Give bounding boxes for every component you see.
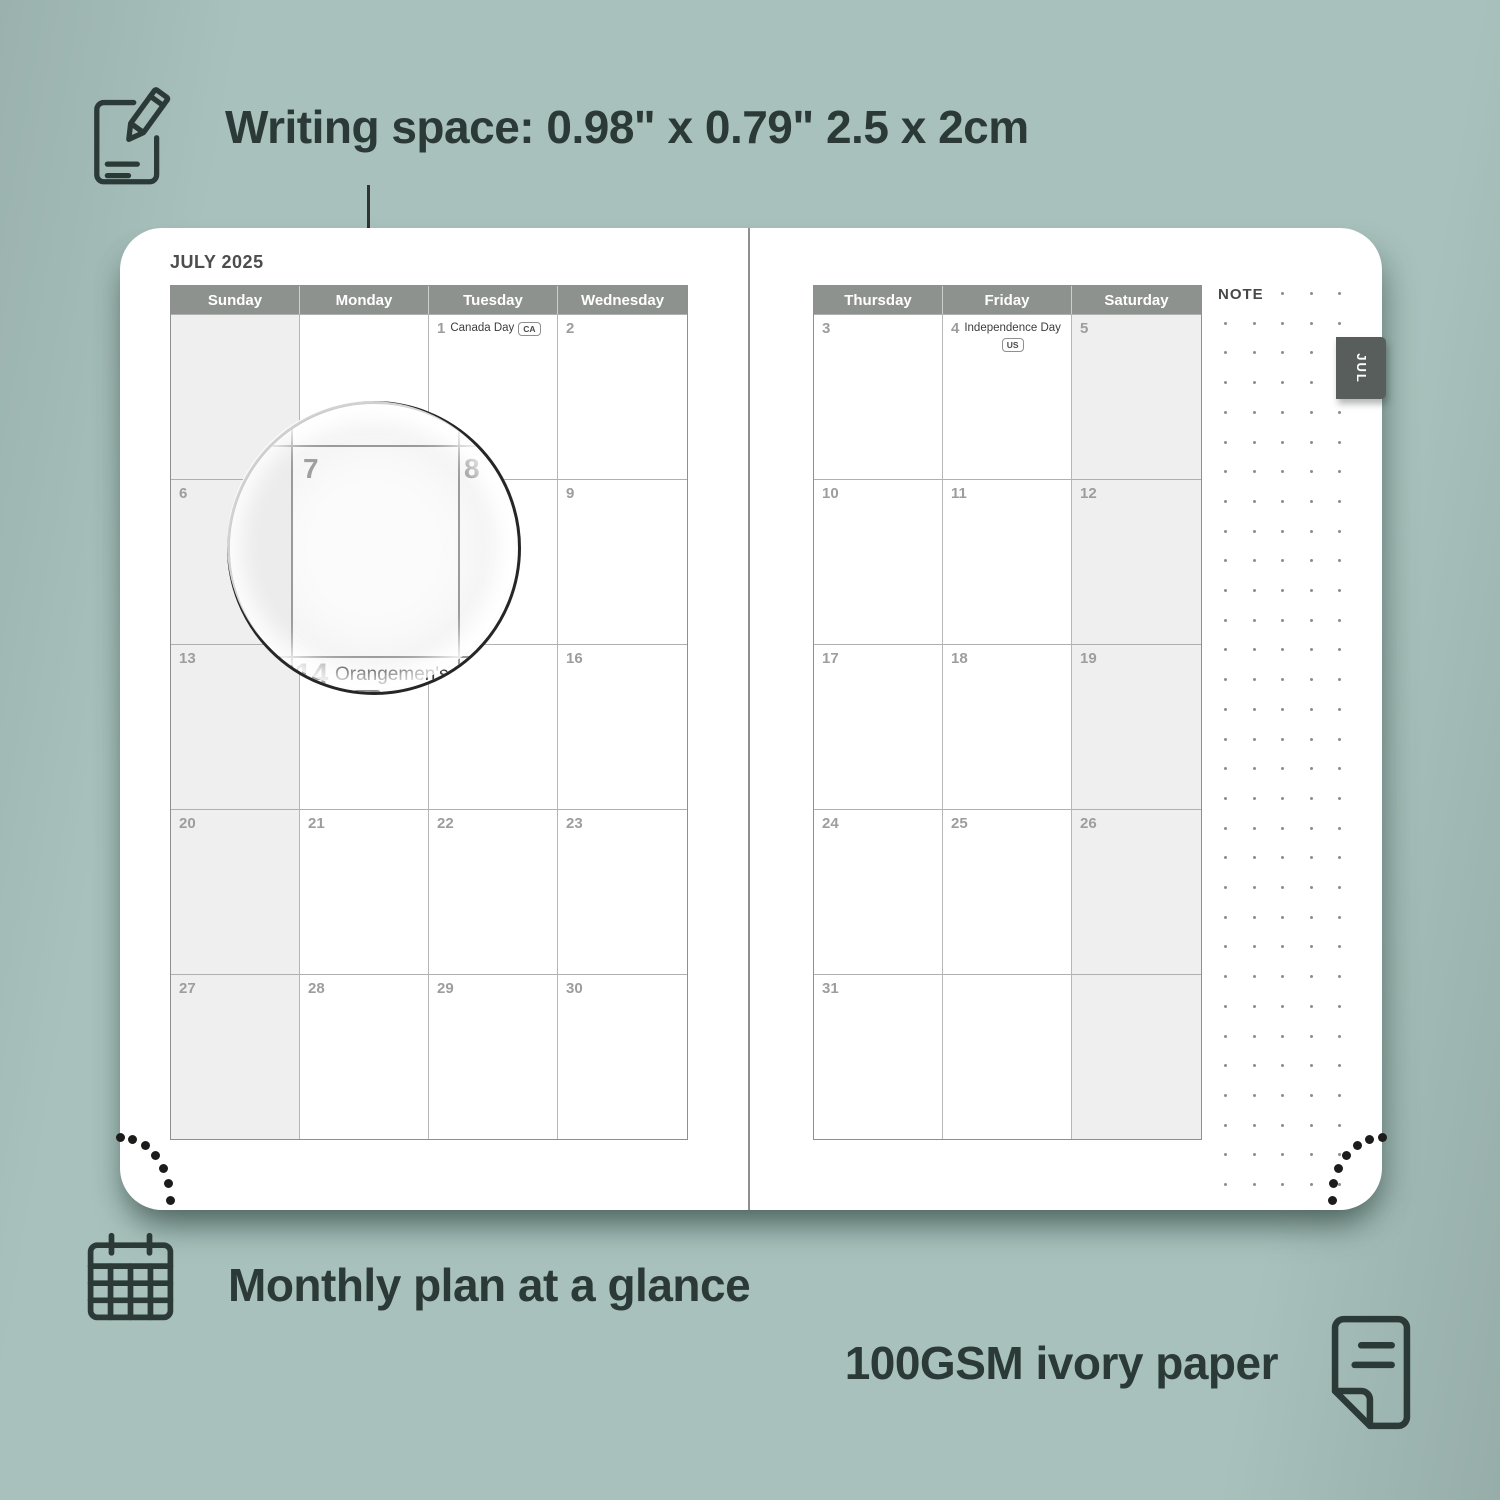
note-dot bbox=[1224, 1124, 1227, 1127]
day-header: Saturday bbox=[1072, 286, 1201, 314]
date-number: 23 bbox=[566, 816, 583, 833]
monthly-plan-label: Monthly plan at a glance bbox=[228, 1258, 750, 1312]
note-dot bbox=[1338, 1094, 1341, 1097]
note-dot bbox=[1253, 530, 1256, 533]
day-header: Tuesday bbox=[429, 286, 558, 314]
calendar-cell: 20 bbox=[171, 809, 300, 974]
note-dot bbox=[1281, 1064, 1284, 1067]
calendar-cell: 2 bbox=[558, 314, 687, 479]
note-dot bbox=[1224, 411, 1227, 414]
note-dot bbox=[1310, 708, 1313, 711]
note-dot bbox=[1224, 886, 1227, 889]
note-dot bbox=[1310, 975, 1313, 978]
note-dot bbox=[1338, 827, 1341, 830]
magnified-day-number: 14 bbox=[295, 660, 328, 690]
note-dot bbox=[1338, 1124, 1341, 1127]
holiday: Independence DayUS bbox=[964, 322, 1061, 352]
date-number: 3 bbox=[822, 321, 830, 338]
note-dot bbox=[1253, 708, 1256, 711]
note-dot bbox=[1281, 619, 1284, 622]
note-dot bbox=[1224, 767, 1227, 770]
note-dot bbox=[1338, 322, 1341, 325]
note-dot bbox=[1338, 500, 1341, 503]
note-dot bbox=[1310, 500, 1313, 503]
note-dot bbox=[1224, 678, 1227, 681]
note-dot bbox=[1310, 411, 1313, 414]
corner-dot bbox=[1365, 1135, 1374, 1144]
date-number: 18 bbox=[951, 651, 968, 668]
note-dot bbox=[1224, 708, 1227, 711]
magnified-grid-line bbox=[291, 404, 293, 692]
note-dot bbox=[1310, 351, 1313, 354]
note-dot bbox=[1224, 797, 1227, 800]
note-dot bbox=[1224, 648, 1227, 651]
note-dot bbox=[1310, 589, 1313, 592]
note-dot bbox=[1281, 856, 1284, 859]
note-dot bbox=[1281, 589, 1284, 592]
writing-space-label: Writing space: 0.98" x 0.79" 2.5 x 2cm bbox=[225, 100, 1029, 154]
magnified-day-number: 7 bbox=[303, 455, 319, 483]
note-dot bbox=[1281, 1005, 1284, 1008]
magnified-grid-line bbox=[230, 656, 518, 658]
note-dot bbox=[1310, 441, 1313, 444]
note-dot bbox=[1338, 975, 1341, 978]
note-dot bbox=[1224, 856, 1227, 859]
calendar-cell: 31 bbox=[814, 974, 943, 1139]
note-dot bbox=[1224, 589, 1227, 592]
note-dot bbox=[1281, 411, 1284, 414]
calendar-cell: 29 bbox=[429, 974, 558, 1139]
note-dot bbox=[1310, 1153, 1313, 1156]
note-label: NOTE bbox=[1218, 286, 1269, 303]
note-dot bbox=[1253, 678, 1256, 681]
note-dot bbox=[1338, 411, 1341, 414]
note-dot bbox=[1253, 648, 1256, 651]
note-dot bbox=[1338, 470, 1341, 473]
calendar-cell: 19 bbox=[1072, 644, 1201, 809]
note-dot bbox=[1253, 589, 1256, 592]
calendar-cell bbox=[1072, 974, 1201, 1139]
calendar-cell: 28 bbox=[300, 974, 429, 1139]
date-number: 29 bbox=[437, 981, 454, 998]
product-image: Writing space: 0.98" x 0.79" 2.5 x 2cm J… bbox=[0, 0, 1500, 1500]
note-dot bbox=[1224, 559, 1227, 562]
note-dot bbox=[1310, 292, 1313, 295]
magnifier-bubble: 7 8 14 Orangemen's Day NL bbox=[227, 401, 521, 695]
note-dot bbox=[1224, 322, 1227, 325]
note-dot bbox=[1224, 351, 1227, 354]
note-dot bbox=[1281, 1094, 1284, 1097]
note-dot bbox=[1281, 1183, 1284, 1186]
note-dot bbox=[1281, 441, 1284, 444]
day-header: Friday bbox=[943, 286, 1072, 314]
note-dot bbox=[1253, 411, 1256, 414]
note-dot bbox=[1338, 441, 1341, 444]
note-dot bbox=[1224, 619, 1227, 622]
note-dot bbox=[1310, 678, 1313, 681]
note-dot bbox=[1281, 648, 1284, 651]
note-dot bbox=[1253, 945, 1256, 948]
note-dot bbox=[1253, 559, 1256, 562]
note-dot bbox=[1338, 648, 1341, 651]
note-dot bbox=[1281, 916, 1284, 919]
date-number: 4 bbox=[951, 321, 959, 338]
calendar-cell: 21 bbox=[300, 809, 429, 974]
holiday-name: Independence Day bbox=[964, 322, 1061, 335]
corner-dot bbox=[116, 1133, 125, 1142]
note-dot bbox=[1310, 530, 1313, 533]
holiday-country-badge: CA bbox=[518, 322, 540, 336]
note-dot bbox=[1224, 738, 1227, 741]
note-dot bbox=[1224, 827, 1227, 830]
date-number: 2 bbox=[566, 321, 574, 338]
note-dot bbox=[1310, 1183, 1313, 1186]
calendar-cell: 25 bbox=[943, 809, 1072, 974]
note-dot bbox=[1281, 945, 1284, 948]
note-dot bbox=[1281, 975, 1284, 978]
note-dot bbox=[1338, 856, 1341, 859]
note-dot bbox=[1281, 767, 1284, 770]
calendar-cell: 3 bbox=[814, 314, 943, 479]
note-dot bbox=[1310, 738, 1313, 741]
note-dot bbox=[1253, 1094, 1256, 1097]
note-dot bbox=[1253, 619, 1256, 622]
date-number: 9 bbox=[566, 486, 574, 503]
note-dot bbox=[1253, 351, 1256, 354]
date-number: 28 bbox=[308, 981, 325, 998]
note-dot bbox=[1310, 381, 1313, 384]
note-dot bbox=[1253, 1124, 1256, 1127]
corner-dot bbox=[141, 1141, 150, 1150]
calendar-cell bbox=[943, 974, 1072, 1139]
note-dot bbox=[1281, 500, 1284, 503]
date-number: 21 bbox=[308, 816, 325, 833]
magnified-day-number: 8 bbox=[464, 455, 480, 483]
note-dot bbox=[1338, 1153, 1341, 1156]
note-dot bbox=[1281, 292, 1284, 295]
month-edge-tab-label: JUL bbox=[1354, 353, 1369, 384]
note-dot bbox=[1338, 1005, 1341, 1008]
holiday-name: Canada Day bbox=[450, 322, 514, 335]
note-dot bbox=[1338, 1183, 1341, 1186]
calendar-cell: 18 bbox=[943, 644, 1072, 809]
date-number: 22 bbox=[437, 816, 454, 833]
magnified-holiday-text: Orangemen's Day bbox=[335, 664, 488, 686]
day-header: Sunday bbox=[171, 286, 300, 314]
note-dot bbox=[1310, 886, 1313, 889]
note-dot bbox=[1253, 1153, 1256, 1156]
note-dot bbox=[1338, 797, 1341, 800]
calendar-cell: 17 bbox=[814, 644, 943, 809]
calendar-cell: 12 bbox=[1072, 479, 1201, 644]
date-number: 19 bbox=[1080, 651, 1097, 668]
note-dot bbox=[1224, 1064, 1227, 1067]
corner-dot bbox=[166, 1196, 175, 1205]
holiday: Canada DayCA bbox=[450, 322, 540, 336]
note-dot bbox=[1310, 322, 1313, 325]
note-dot bbox=[1310, 619, 1313, 622]
note-dot bbox=[1281, 1153, 1284, 1156]
note-dot bbox=[1224, 916, 1227, 919]
note-dot bbox=[1338, 530, 1341, 533]
date-number: 26 bbox=[1080, 816, 1097, 833]
note-dot bbox=[1310, 470, 1313, 473]
calendar-cell: 10 bbox=[814, 479, 943, 644]
note-dot bbox=[1224, 530, 1227, 533]
calendar-cell: 23 bbox=[558, 809, 687, 974]
note-dot bbox=[1253, 500, 1256, 503]
note-dot bbox=[1338, 708, 1341, 711]
note-dot bbox=[1253, 1035, 1256, 1038]
note-dot bbox=[1310, 1064, 1313, 1067]
note-dot bbox=[1253, 767, 1256, 770]
calendar-cell: 16 bbox=[558, 644, 687, 809]
calendar-cell: 5 bbox=[1072, 314, 1201, 479]
note-dot bbox=[1338, 738, 1341, 741]
magnified-grid-line bbox=[458, 404, 460, 692]
note-dot bbox=[1253, 916, 1256, 919]
note-dot bbox=[1281, 322, 1284, 325]
note-dot bbox=[1338, 589, 1341, 592]
note-dot bbox=[1253, 1064, 1256, 1067]
month-title: JULY 2025 bbox=[170, 252, 264, 273]
date-number: 31 bbox=[822, 981, 839, 998]
note-dot bbox=[1338, 678, 1341, 681]
note-dot bbox=[1253, 856, 1256, 859]
holiday-country-badge: US bbox=[1002, 338, 1024, 352]
calendar-cell: 26 bbox=[1072, 809, 1201, 974]
note-dot bbox=[1338, 619, 1341, 622]
date-number: 30 bbox=[566, 981, 583, 998]
note-dot bbox=[1281, 797, 1284, 800]
date-number: 24 bbox=[822, 816, 839, 833]
note-dot bbox=[1224, 975, 1227, 978]
date-number: 10 bbox=[822, 486, 839, 503]
note-dot bbox=[1253, 797, 1256, 800]
corner-dot bbox=[1353, 1141, 1362, 1150]
note-dot bbox=[1281, 1124, 1284, 1127]
note-dot bbox=[1310, 1035, 1313, 1038]
note-dot bbox=[1224, 381, 1227, 384]
note-dot bbox=[1281, 559, 1284, 562]
date-number: 6 bbox=[179, 486, 187, 503]
note-dot bbox=[1310, 797, 1313, 800]
paper-label: 100GSM ivory paper bbox=[845, 1336, 1278, 1390]
note-dot bbox=[1310, 1005, 1313, 1008]
calendar-cell: 11 bbox=[943, 479, 1072, 644]
note-dot bbox=[1310, 767, 1313, 770]
note-dot bbox=[1310, 945, 1313, 948]
note-dot bbox=[1253, 886, 1256, 889]
note-dot bbox=[1224, 1005, 1227, 1008]
note-dot bbox=[1281, 827, 1284, 830]
note-dot bbox=[1310, 1124, 1313, 1127]
note-dot bbox=[1253, 738, 1256, 741]
corner-dot bbox=[128, 1135, 137, 1144]
note-dot bbox=[1224, 500, 1227, 503]
note-dot bbox=[1224, 1183, 1227, 1186]
note-dot bbox=[1338, 1035, 1341, 1038]
paper-sheet-icon bbox=[1322, 1310, 1420, 1440]
note-dot bbox=[1310, 648, 1313, 651]
note-dot bbox=[1253, 1183, 1256, 1186]
day-header: Monday bbox=[300, 286, 429, 314]
corner-dot bbox=[1328, 1196, 1337, 1205]
note-dot bbox=[1338, 767, 1341, 770]
date-number: 5 bbox=[1080, 321, 1088, 338]
note-dot bbox=[1281, 678, 1284, 681]
date-number: 25 bbox=[951, 816, 968, 833]
calendar-cell: 27 bbox=[171, 974, 300, 1139]
date-number: 12 bbox=[1080, 486, 1097, 503]
corner-dot bbox=[159, 1164, 168, 1173]
date-number: 16 bbox=[566, 651, 583, 668]
date-number: 17 bbox=[822, 651, 839, 668]
note-dot bbox=[1253, 381, 1256, 384]
note-dot bbox=[1281, 530, 1284, 533]
calendar-cell: 24 bbox=[814, 809, 943, 974]
corner-dot bbox=[1342, 1151, 1351, 1160]
note-dot bbox=[1310, 827, 1313, 830]
note-dot bbox=[1281, 1035, 1284, 1038]
note-dot bbox=[1281, 351, 1284, 354]
magnified-grid-line bbox=[230, 445, 518, 447]
note-dot bbox=[1224, 441, 1227, 444]
note-dot bbox=[1224, 1153, 1227, 1156]
day-header: Thursday bbox=[814, 286, 943, 314]
note-dot bbox=[1310, 856, 1313, 859]
note-dot bbox=[1310, 559, 1313, 562]
note-dot bbox=[1224, 1035, 1227, 1038]
magnified-weekend-shade bbox=[230, 404, 291, 692]
note-dot bbox=[1338, 559, 1341, 562]
corner-dot bbox=[164, 1179, 173, 1188]
note-dot bbox=[1281, 381, 1284, 384]
note-dot bbox=[1253, 827, 1256, 830]
date-number: 1 bbox=[437, 321, 445, 338]
note-dot bbox=[1338, 916, 1341, 919]
note-dot bbox=[1253, 1005, 1256, 1008]
note-dot bbox=[1224, 1094, 1227, 1097]
calendar-cell: 9 bbox=[558, 479, 687, 644]
note-dot bbox=[1253, 975, 1256, 978]
note-dot bbox=[1281, 886, 1284, 889]
date-number: 11 bbox=[951, 486, 967, 503]
calendar-right-page: ThursdayFridaySaturday34Independence Day… bbox=[813, 285, 1202, 1140]
calendar-grid-icon bbox=[83, 1230, 178, 1330]
note-dot bbox=[1224, 470, 1227, 473]
calendar-cell: 22 bbox=[429, 809, 558, 974]
note-dot bbox=[1338, 292, 1341, 295]
corner-dot bbox=[1334, 1164, 1343, 1173]
note-dot bbox=[1281, 708, 1284, 711]
calendar-cell: 30 bbox=[558, 974, 687, 1139]
corner-dot bbox=[151, 1151, 160, 1160]
notebook-spine bbox=[748, 228, 750, 1210]
planner-notebook: JULY 2025 SundayMondayTuesdayWednesday1C… bbox=[120, 228, 1382, 1210]
note-dot bbox=[1253, 441, 1256, 444]
note-dot bbox=[1338, 886, 1341, 889]
note-dot bbox=[1338, 945, 1341, 948]
note-dot bbox=[1253, 322, 1256, 325]
month-edge-tab: JUL bbox=[1336, 337, 1386, 399]
note-dot bbox=[1310, 916, 1313, 919]
note-dot bbox=[1338, 1064, 1341, 1067]
note-dot bbox=[1253, 470, 1256, 473]
day-header: Wednesday bbox=[558, 286, 687, 314]
note-dot bbox=[1224, 945, 1227, 948]
note-dot bbox=[1281, 470, 1284, 473]
corner-dot bbox=[1329, 1179, 1338, 1188]
date-number: 27 bbox=[179, 981, 196, 998]
note-dot bbox=[1310, 1094, 1313, 1097]
corner-dot bbox=[1378, 1133, 1387, 1142]
date-number: 13 bbox=[179, 651, 196, 668]
note-dot bbox=[1281, 738, 1284, 741]
pencil-note-icon bbox=[88, 80, 176, 197]
calendar-cell: 4Independence DayUS bbox=[943, 314, 1072, 479]
date-number: 20 bbox=[179, 816, 196, 833]
